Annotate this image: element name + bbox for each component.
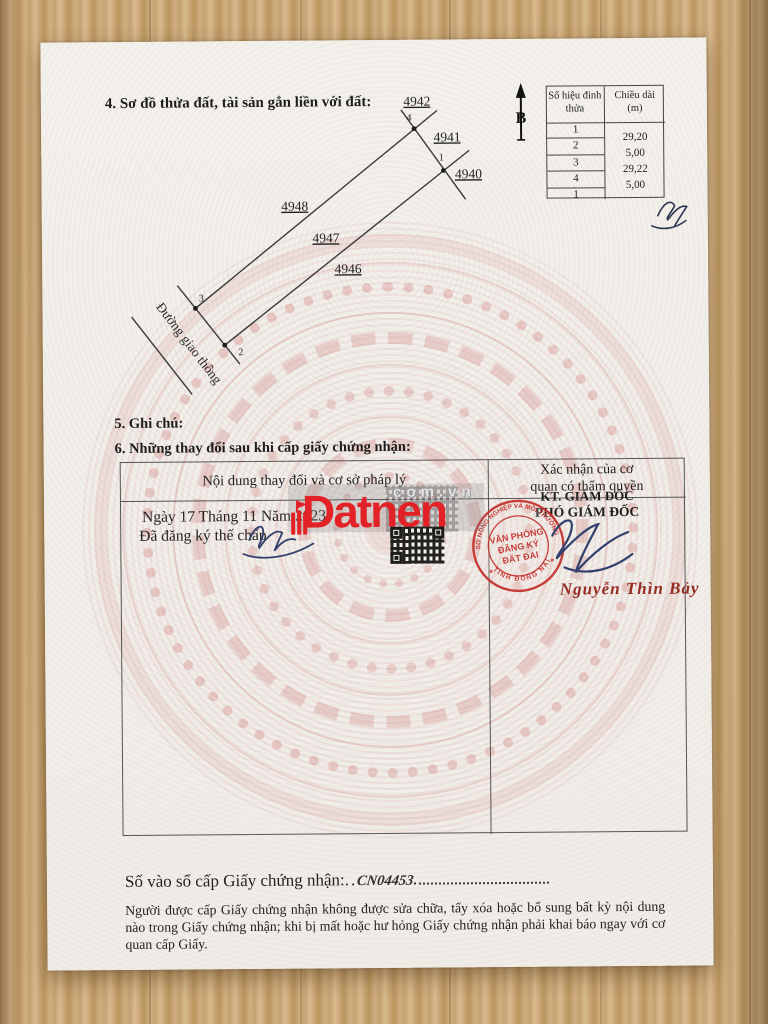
length-table-header-length: Chiều dài [614, 90, 655, 101]
vertex-number-2: 2 [238, 347, 243, 358]
vertex-dot-1 [441, 168, 446, 173]
vertex-number-1: 1 [439, 152, 444, 163]
vertex-row: 3 [547, 155, 604, 172]
edge-length: 29,20 [606, 131, 664, 143]
vertex-dot-3 [193, 306, 198, 311]
certificate-page: 4. Sơ đồ thửa đất, tài sản gắn liền với … [40, 37, 713, 970]
plot-label-4946: 4946 [335, 261, 362, 276]
edge-length-table: Số hiệu đỉnh thửa Chiều dài (m) 1 2 3 4 … [546, 85, 665, 199]
road-label: Đường giao thông [153, 300, 225, 387]
registration-qr-code [390, 526, 444, 563]
length-table-header-vertex: Số hiệu đỉnh thửa [548, 89, 602, 115]
vertex-row: 2 [547, 139, 604, 156]
vertex-row: 4 [547, 171, 604, 188]
parcel-edge-3-4 [194, 111, 439, 309]
handwritten-paraph [652, 202, 687, 228]
serial-label: Số vào sổ cấp Giấy chứng nhận: [125, 870, 345, 891]
photo-of-land-certificate: { "doc": { "title4": "4. Sơ đồ thửa đất,… [0, 0, 768, 1024]
serial-line: Số vào sổ cấp Giấy chứng nhận:..CN04453 [125, 869, 549, 892]
official-stamp-and-signature: SỞ NÔNG NGHIỆP VÀ MÔI TRƯỜNG TỈNH ĐỒNG N… [458, 485, 669, 617]
vertex-dot-4 [412, 126, 417, 131]
length-table-header-unit: (m) [627, 103, 642, 114]
changes-col2-header-line1: Xác nhận của cơ [540, 462, 633, 478]
plot-label-4942: 4942 [403, 94, 430, 109]
director-signature [552, 520, 632, 573]
plot-label-4947: 4947 [312, 230, 339, 245]
edge-length: 5,00 [606, 179, 664, 191]
plot-label-4948: 4948 [281, 199, 308, 214]
vertex-number-4: 4 [406, 113, 411, 124]
section6-title: 6. Những thay đổi sau khi cấp giấy chứng… [114, 439, 410, 458]
plot-label-4941: 4941 [434, 129, 461, 144]
north-arrow-icon: B [515, 83, 526, 140]
serial-value-handwritten: CN04453 [356, 873, 415, 890]
section5-title: 5. Ghi chú: [114, 416, 183, 434]
edge-length: 5,00 [606, 147, 664, 159]
plot-label-4940: 4940 [455, 166, 482, 181]
north-letter-b: B [516, 110, 527, 127]
vertex-row: 1 [547, 122, 604, 139]
vertex-dot-2 [222, 343, 227, 348]
dotted-leader [414, 870, 549, 885]
disclaimer-line2: Giấy chứng nhận; khi bị mất hoặc hư hỏng… [125, 916, 665, 952]
edge-length: 29,22 [606, 163, 664, 175]
disclaimer-paragraph: Người được cấp Giấy chứng nhận không đượ… [125, 899, 665, 954]
parcel-edge-2-1 [223, 150, 471, 345]
vertex-number-3: 3 [199, 293, 204, 304]
vertex-row: 1 [548, 188, 605, 199]
